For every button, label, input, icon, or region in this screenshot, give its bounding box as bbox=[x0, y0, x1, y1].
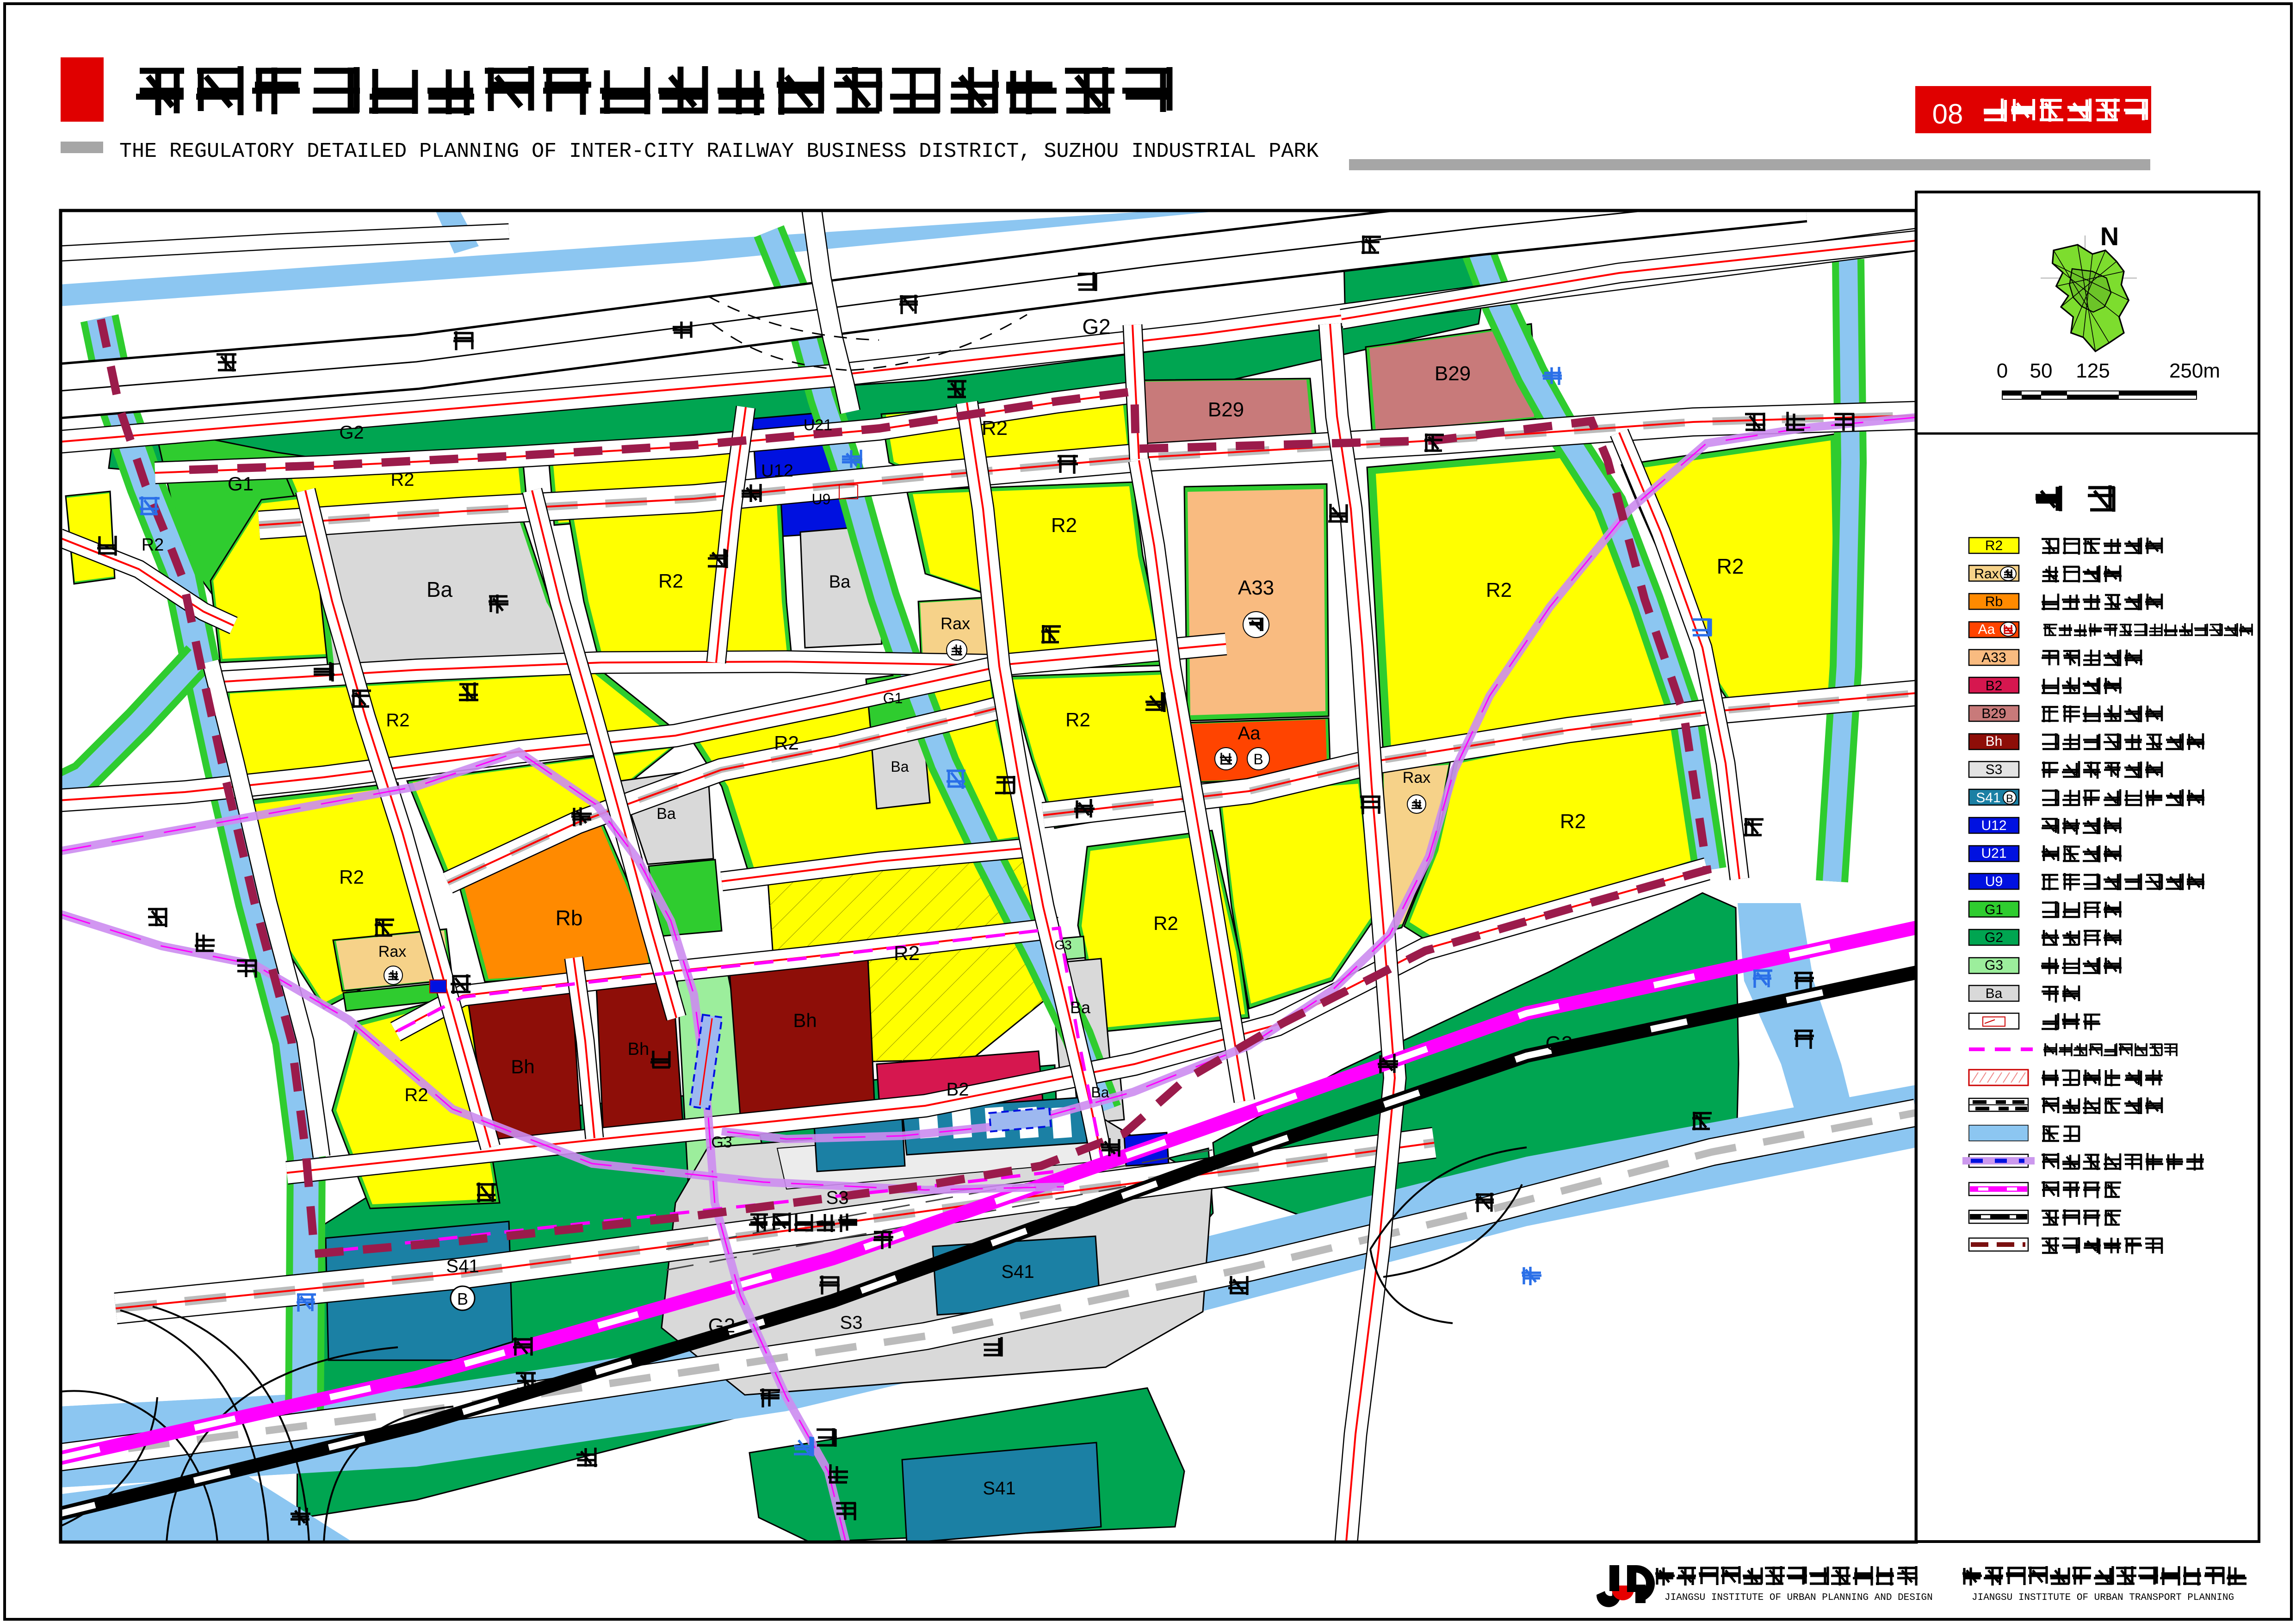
svg-text:G2: G2 bbox=[1546, 1032, 1573, 1055]
svg-text:S3: S3 bbox=[1986, 762, 2003, 777]
svg-text:R2: R2 bbox=[1985, 538, 2003, 553]
svg-text:U21: U21 bbox=[1981, 846, 2006, 861]
svg-text:U9: U9 bbox=[812, 491, 831, 508]
svg-text:Aa: Aa bbox=[1238, 723, 1261, 743]
svg-text:B: B bbox=[2006, 793, 2013, 805]
svg-text:R2: R2 bbox=[1717, 554, 1744, 578]
svg-text:B: B bbox=[457, 1289, 468, 1308]
svg-text:Bh: Bh bbox=[793, 1010, 817, 1031]
svg-text:50: 50 bbox=[2030, 359, 2053, 382]
svg-text:S41: S41 bbox=[983, 1478, 1015, 1499]
svg-text:R2: R2 bbox=[142, 535, 164, 555]
svg-text:G1: G1 bbox=[1985, 902, 2003, 917]
svg-text:S3: S3 bbox=[840, 1313, 863, 1333]
svg-text:Ba: Ba bbox=[1986, 986, 2003, 1001]
svg-text:G1: G1 bbox=[228, 473, 254, 495]
svg-text:S41: S41 bbox=[1001, 1262, 1034, 1282]
svg-text:U21: U21 bbox=[804, 416, 832, 434]
svg-text:G1: G1 bbox=[883, 690, 903, 706]
svg-text:R2: R2 bbox=[982, 417, 1008, 440]
svg-text:G3: G3 bbox=[1054, 938, 1071, 952]
svg-text:G2: G2 bbox=[708, 1314, 736, 1337]
svg-text:S41: S41 bbox=[1976, 790, 2000, 805]
svg-text:B29: B29 bbox=[1981, 706, 2006, 721]
svg-text:U9: U9 bbox=[1985, 874, 2003, 889]
svg-text:R2: R2 bbox=[1153, 912, 1178, 934]
svg-text:Ba: Ba bbox=[891, 758, 909, 775]
svg-text:S3: S3 bbox=[826, 1188, 849, 1208]
svg-text:Rb: Rb bbox=[556, 906, 583, 930]
svg-text:B2: B2 bbox=[1986, 678, 2003, 694]
svg-text:B29: B29 bbox=[1435, 362, 1471, 385]
svg-text:G2: G2 bbox=[1985, 930, 2003, 945]
svg-text:B29: B29 bbox=[1208, 398, 1244, 421]
svg-text:G2: G2 bbox=[339, 422, 364, 443]
svg-text:R2: R2 bbox=[1065, 709, 1090, 731]
svg-text:08: 08 bbox=[1932, 99, 1963, 130]
svg-text:R2: R2 bbox=[1560, 810, 1586, 833]
svg-text:Bh: Bh bbox=[628, 1040, 649, 1059]
svg-text:G2: G2 bbox=[1082, 315, 1110, 339]
svg-text:G3: G3 bbox=[711, 1134, 732, 1151]
svg-text:R2: R2 bbox=[1486, 579, 1512, 601]
svg-text:Ba: Ba bbox=[656, 805, 676, 823]
svg-text:U12: U12 bbox=[761, 461, 793, 481]
svg-text:A33: A33 bbox=[1238, 576, 1274, 599]
svg-text:Ba: Ba bbox=[427, 577, 453, 601]
svg-text:R2: R2 bbox=[386, 710, 409, 731]
svg-text:R2: R2 bbox=[774, 732, 799, 754]
svg-text:B: B bbox=[1253, 751, 1263, 768]
svg-text:U12: U12 bbox=[1981, 818, 2006, 833]
svg-text:Rax: Rax bbox=[1403, 769, 1430, 787]
svg-text:G3: G3 bbox=[1985, 958, 2003, 973]
svg-text:Bh: Bh bbox=[511, 1056, 534, 1078]
svg-text:N: N bbox=[2100, 222, 2119, 251]
svg-text:R2: R2 bbox=[658, 570, 683, 592]
svg-text:Ba: Ba bbox=[1091, 1084, 1109, 1101]
svg-text:B2: B2 bbox=[947, 1079, 969, 1100]
svg-text:250m: 250m bbox=[2169, 359, 2220, 382]
svg-text:Ba: Ba bbox=[1070, 998, 1091, 1017]
svg-text:JIANGSU INSTITUTE OF URBAN TRA: JIANGSU INSTITUTE OF URBAN TRANSPORT PLA… bbox=[1972, 1592, 2234, 1603]
svg-text:Aa: Aa bbox=[1978, 622, 1995, 637]
svg-text:Rb: Rb bbox=[1985, 594, 2003, 609]
svg-text:Rax: Rax bbox=[1974, 566, 1999, 582]
svg-text:Rax: Rax bbox=[941, 614, 970, 633]
svg-text:Rax: Rax bbox=[378, 943, 406, 960]
svg-text:R2: R2 bbox=[894, 942, 920, 965]
svg-text:0: 0 bbox=[1997, 359, 2008, 382]
svg-text:JIANGSU INSTITUTE OF URBAN PLA: JIANGSU INSTITUTE OF URBAN PLANNING AND … bbox=[1665, 1592, 1933, 1603]
svg-text:THE REGULATORY DETAILED PLANNI: THE REGULATORY DETAILED PLANNING OF INTE… bbox=[119, 140, 1318, 163]
svg-text:A33: A33 bbox=[1981, 650, 2006, 665]
svg-text:R2: R2 bbox=[339, 866, 364, 888]
svg-text:Bh: Bh bbox=[1986, 734, 2003, 749]
svg-text:R2: R2 bbox=[1051, 514, 1077, 537]
svg-text:R2: R2 bbox=[404, 1085, 428, 1105]
svg-text:R2: R2 bbox=[390, 470, 414, 490]
svg-text:S41: S41 bbox=[446, 1256, 479, 1276]
svg-text:Ba: Ba bbox=[829, 572, 851, 592]
svg-text:125: 125 bbox=[2076, 359, 2110, 382]
